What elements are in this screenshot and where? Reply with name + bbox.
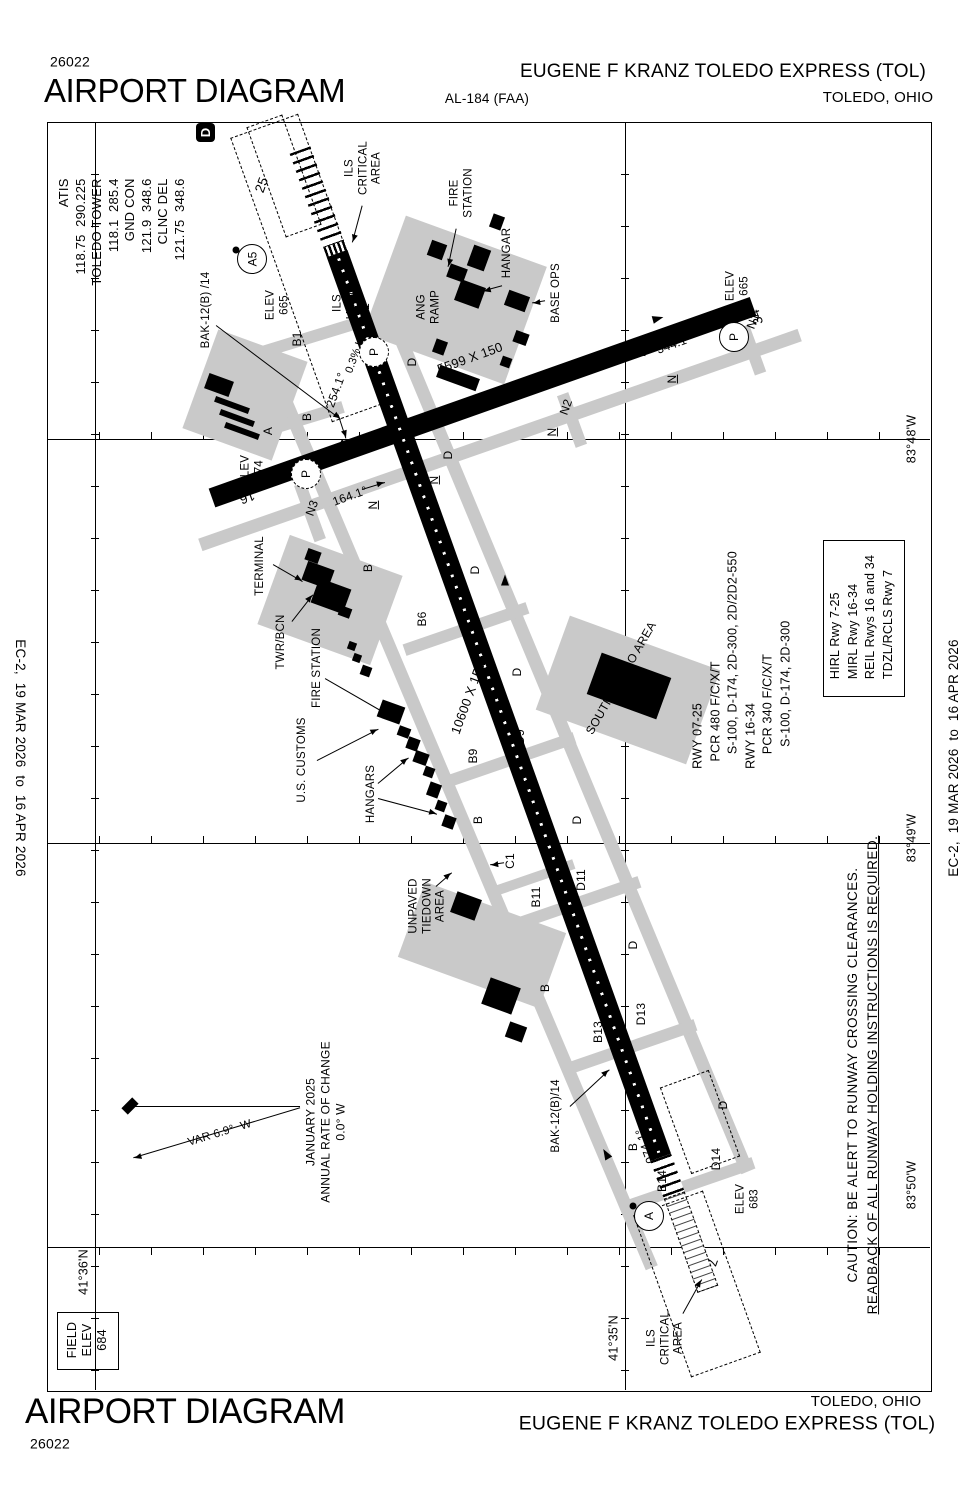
lon-label-8350: 83°50'W [905,1161,920,1209]
taxiway-b-label: B [300,413,314,421]
tick-marks [91,122,99,1390]
taxiway-n-label: N [545,428,559,437]
fire-station-label-top: FIRE STATION [448,168,475,218]
rate-of-change-label: JANUARY 2025 ANNUAL RATE OF CHANGE 0.0° … [304,1041,349,1203]
tick-marks [47,1248,930,1255]
taxiway-d14-label: D14 [709,1148,723,1171]
tick-marks [47,836,930,843]
light-beacon-icon [501,571,509,586]
taxiway-d-label: D [570,816,584,825]
taxiway-b-label: B [538,984,552,992]
chart-number-top: 26022 [50,54,90,71]
runway-data-block: RWY 07-25 PCR 480 F/C/X/T S-100, D-174, … [690,551,795,769]
taxiway-d1-label: D1 [358,303,372,319]
hangar-label: HANGAR [501,228,515,278]
taxiway-b-label: B [361,564,375,572]
taxiway-b11-label: B11 [529,886,543,907]
bak-arresting-gear-label-bottom: BAK-12(B)/14 [550,1079,564,1152]
position-dot [233,247,240,254]
taxiway-a-label: A [261,427,275,435]
taxiway-d-label: D [510,668,524,677]
position-dot [630,1203,637,1210]
lat-label-4135: 41°35'N [607,1315,622,1361]
frequency-block: ATIS 118.75 290.225 TOLEDO TOWER 118.1 2… [56,178,188,285]
al-number: AL-184 (FAA) [445,91,529,107]
parking-label: P [727,333,741,341]
taxiway-a5-circle: A5 [237,244,267,274]
city-bottom: TOLEDO, OHIO [811,1393,921,1411]
field-elevation-text: FIELD ELEV 684 [65,1322,109,1358]
hangars-label: HANGARS [365,765,379,823]
taxiway-b14-label: B14 [655,1170,669,1192]
base-ops-label: BASE OPS [550,263,564,323]
effective-dates-right: EC-2, 19 MAR 2026 to 16 APR 2026 [946,639,962,876]
taxiway-d13-label: D13 [634,1003,648,1026]
taxiway-b13-label: B13 [591,1021,605,1043]
ils-critical-area-label-bottom: ILS CRITICAL AREA [646,1311,687,1365]
page-title-bottom: AIRPORT DIAGRAM [25,1392,345,1432]
north-arrow-line [128,1106,300,1107]
parking-circle: P [291,459,321,489]
taxiway-a-circle-label: A [642,1212,656,1220]
elev-7-label: ELEV 683 [734,1184,761,1214]
page-title-top: AIRPORT DIAGRAM [44,72,345,110]
taxiway-d11-label: D11 [574,869,588,891]
fire-station-label-mid: FIRE STATION [311,628,325,708]
taxiway-d-label: D [441,451,455,460]
us-customs-label: U.S. CUSTOMS [296,717,310,802]
elev-16-label: ELEV 674 [239,455,266,485]
longitude-line-8349 [47,843,930,844]
taxiway-a5-label: A5 [245,252,259,267]
effective-dates-left: EC-2, 19 MAR 2026 to 16 APR 2026 [12,639,28,876]
taxiway-d-label: D [468,566,482,575]
terminal-label: TERMINAL [254,536,268,596]
chart-number-bottom: 26022 [30,1436,70,1453]
taxiway-d9-label: D9 [513,729,527,745]
taxiway-b-label: B [626,1143,640,1151]
caution-line2: READBACK OF ALL RUNWAY HOLDING INSTRUCTI… [865,836,881,1315]
lon-label-8349: 83°49'W [905,814,920,862]
hotspot-d-label: D [198,128,213,137]
taxiway-d-label: D [716,1101,730,1110]
parking-circle: P [359,337,389,367]
elev-34-label: ELEV 665 [724,271,751,301]
airport-diagram-page: { "header": { "chart_number": "26022", "… [0,0,978,1500]
taxiway-b9-label: B9 [466,748,480,763]
city-top: TOLEDO, OHIO [823,89,933,107]
hotspot-d-icon: D [196,123,215,142]
taxiway-d-label: D [405,358,419,367]
taxiway-b-label: B [471,816,485,824]
taxiway-n-label: N [665,375,679,384]
taxiway-c1-label: C1 [503,853,517,869]
ils-critical-area-label-top: ILS CRITICAL AREA [344,141,385,195]
lat-label-4136: 41°36'N [77,1249,92,1295]
taxiway-a-circle: A [634,1201,664,1231]
twr-bcn-label: TWR/BCN [275,614,289,669]
unpaved-tiedown-label: UNPAVED TIEDOWN AREA [408,878,449,934]
lighting-data: HIRL Rwy 7-25 MIRL Rwy 16-34 REIL Rwys 1… [827,555,897,679]
bak-arresting-gear-label-top: BAK-12(B) /14 [200,272,214,349]
elev-25-label: ELEV 665 [264,290,291,320]
ang-ramp-label: ANG RAMP [415,290,442,324]
taxiway-d-label: D [626,941,640,950]
parking-label: P [299,470,313,478]
airport-name-top: EUGENE F KRANZ TOLEDO EXPRESS (TOL) [520,61,926,83]
parking-circle: P [719,322,749,352]
taxiway-d6-label: D6 [466,613,480,629]
taxiway-b6-label: B6 [415,611,429,626]
caution-line1: CAUTION: BE ALERT TO RUNWAY CROSSING CLE… [845,867,861,1282]
taxiway-b1-label: B1 [290,331,304,346]
airport-name-bottom: EUGENE F KRANZ TOLEDO EXPRESS (TOL) [519,1413,936,1436]
lon-label-8348: 83°48'W [905,415,920,463]
taxiway-n-label: N [366,501,380,510]
parking-label: P [367,348,381,356]
ils-hold-label: ILS HOLD [331,287,358,320]
taxiway-n-label: N [427,476,441,485]
